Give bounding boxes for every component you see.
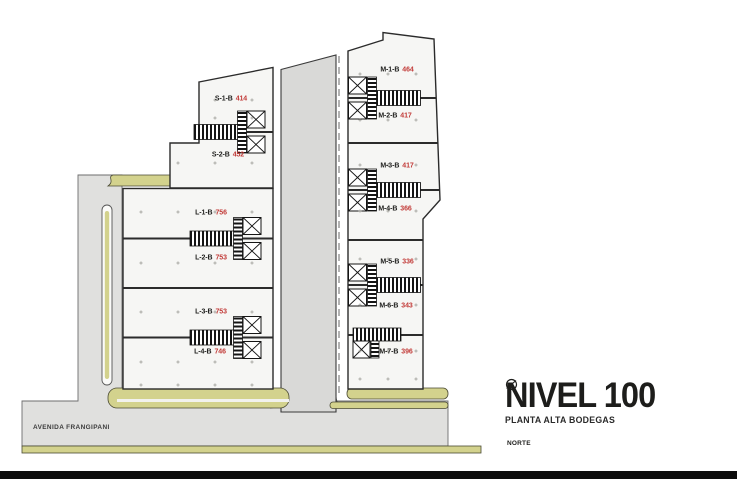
sidewalk-strip-right-lower (330, 402, 448, 409)
unit-label-M-6-B: M-6-B343 (379, 303, 413, 310)
north-icon (505, 378, 518, 391)
street-edge-strip (22, 446, 481, 453)
unit-label-L-2-B: L-2-B753 (195, 255, 227, 262)
unit-label-L-3-B: L-3-B753 (195, 309, 227, 316)
floor-plan-canvas: S-1-B414S-2-B452L-1-B756L-2-B753L-3-B753… (0, 0, 737, 479)
unit-label-S-2-B: S-2-B452 (212, 152, 244, 159)
title-block: NIVEL 100 PLANTA ALTA BODEGAS NORTE (505, 378, 667, 447)
north-indicator: NORTE (505, 440, 667, 447)
page-title: NIVEL 100 (505, 378, 655, 413)
unit-label-L-4-B: L-4-B746 (194, 349, 226, 356)
unit-label-M-2-B: M-2-B417 (378, 113, 412, 120)
unit-label-S-1-B: S-1-B414 (215, 96, 247, 103)
page-subtitle: PLANTA ALTA BODEGAS (505, 415, 654, 426)
unit-label-M-4-B: M-4-B366 (378, 206, 412, 213)
unit-label-M-3-B: M-3-B417 (380, 163, 414, 170)
bottom-rule (0, 471, 737, 479)
north-label: NORTE (507, 440, 531, 447)
planter-strip-top (108, 175, 170, 186)
unit-label-M-1-B: M-1-B464 (380, 67, 414, 74)
central-corridor (270, 55, 347, 412)
unit-label-M-5-B: M-5-B336 (380, 259, 414, 266)
median-island (102, 205, 112, 385)
unit-label-M-7-B: M-7-B396 (379, 349, 413, 356)
street-label: AVENIDA FRANGIPANI (33, 424, 110, 431)
sidewalk-stripe (117, 399, 289, 402)
sidewalk-strip-left (108, 388, 289, 408)
unit-label-L-1-B: L-1-B756 (195, 210, 227, 217)
